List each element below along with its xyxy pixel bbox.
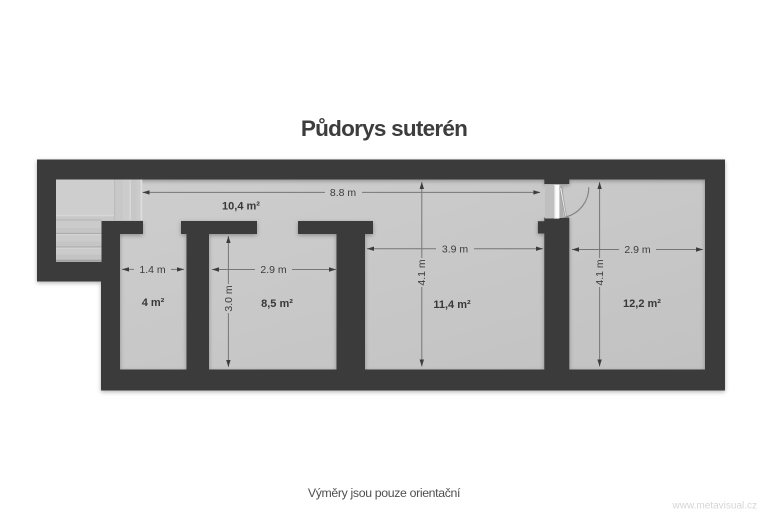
svg-text:Půdorys suterén: Půdorys suterén	[301, 116, 467, 141]
svg-text:12,2 m²: 12,2 m²	[623, 298, 661, 310]
svg-text:Výměry jsou pouze orientační: Výměry jsou pouze orientační	[308, 486, 461, 500]
svg-text:4.1 m: 4.1 m	[594, 259, 606, 286]
svg-text:2.9 m: 2.9 m	[624, 244, 651, 256]
svg-text:8.8 m: 8.8 m	[330, 187, 357, 199]
svg-text:1.4 m: 1.4 m	[139, 264, 166, 276]
svg-text:11,4 m²: 11,4 m²	[433, 299, 471, 311]
svg-text:4.1 m: 4.1 m	[416, 259, 428, 286]
svg-text:3.9 m: 3.9 m	[442, 243, 469, 255]
svg-text:3.0 m: 3.0 m	[223, 285, 235, 312]
svg-text:www.metavisual.cz: www.metavisual.cz	[672, 501, 757, 512]
svg-text:10,4 m²: 10,4 m²	[222, 201, 260, 213]
svg-text:2.9 m: 2.9 m	[260, 264, 287, 276]
svg-text:4 m²: 4 m²	[142, 297, 165, 309]
svg-text:8,5 m²: 8,5 m²	[261, 298, 293, 310]
